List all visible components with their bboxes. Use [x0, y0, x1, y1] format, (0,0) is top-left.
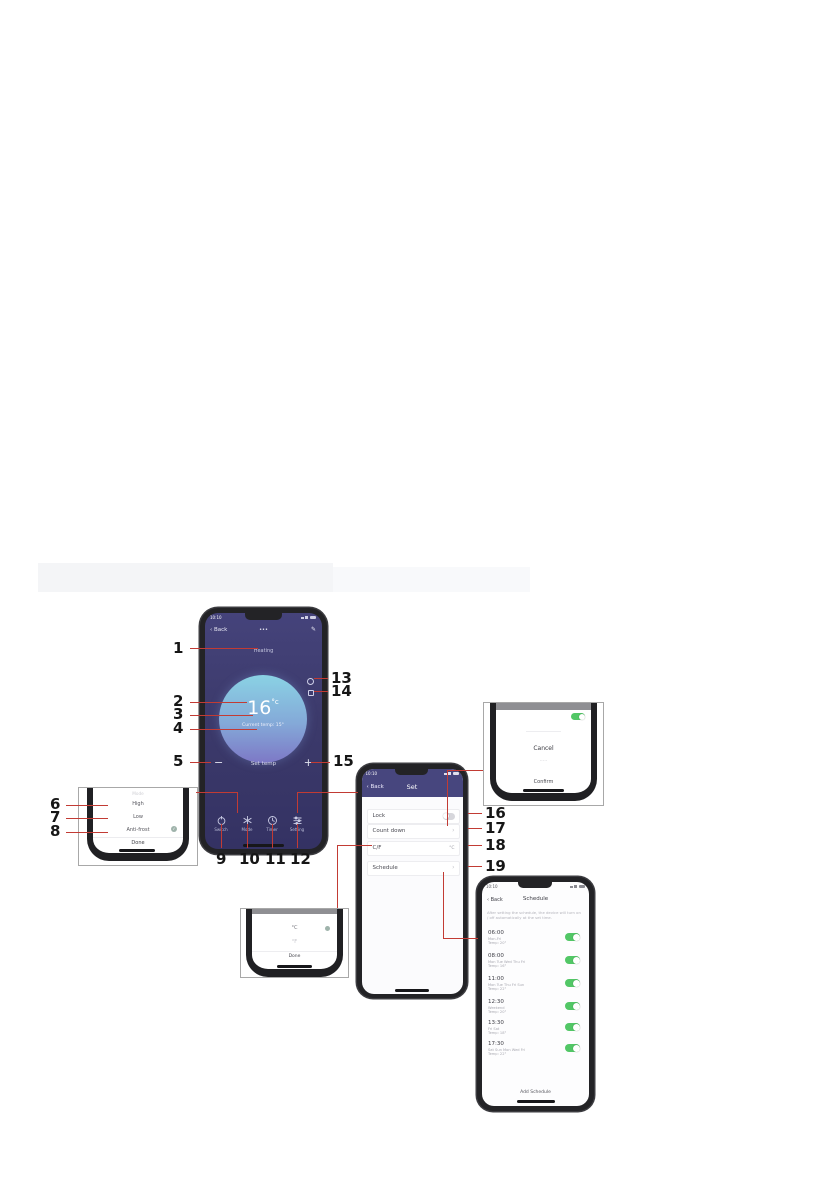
connector-countdown-v	[447, 770, 448, 826]
mode-done-button[interactable]: Done	[93, 840, 183, 846]
schedule-entry[interactable]: 11:00 Mon Tue Thu Fri Sun Temp: 22°	[488, 976, 583, 991]
schedule-note: After setting the schedule, the device w…	[487, 910, 582, 921]
countdown-confirm-button[interactable]: Confirm	[496, 779, 591, 785]
status-time: 10:10	[486, 884, 498, 889]
edit-icon[interactable]: ✎	[311, 626, 316, 633]
countdown-sheet-fragment-box: Cancel ····· Confirm	[483, 702, 604, 806]
entry-toggle[interactable]	[565, 1023, 580, 1031]
selected-check-icon: ✓	[171, 826, 177, 832]
scan-artifact-band	[38, 563, 333, 592]
connector-schedule-h	[443, 938, 478, 939]
scan-artifact-band	[333, 567, 530, 592]
countdown-sheet-phone: Cancel ····· Confirm	[490, 703, 597, 801]
current-temperature-label: Current temp: 15°	[219, 723, 307, 728]
wifi-icon	[305, 616, 308, 619]
cf-sheet-fragment-box: °C °F Done	[240, 908, 349, 978]
row-countdown[interactable]: Count down ›	[367, 824, 460, 839]
entry-toggle[interactable]	[565, 979, 580, 987]
schedule-screen: 10:10 ‹ Back Schedule After setting the …	[482, 882, 589, 1106]
entry-temp: Temp: 18°	[488, 1031, 583, 1035]
countdown-enable-toggle[interactable]	[571, 713, 585, 720]
connector-modesheet-v	[237, 792, 238, 813]
home-indicator	[243, 844, 284, 847]
callout-line-16	[468, 813, 482, 814]
divider	[252, 951, 337, 952]
phone-notch	[395, 769, 428, 775]
callout-line-4	[190, 729, 257, 730]
row-schedule[interactable]: Schedule ›	[367, 861, 460, 876]
home-indicator	[277, 965, 312, 968]
callout-number-4: 4	[173, 721, 183, 736]
callout-line-19	[468, 866, 482, 867]
schedule-entry[interactable]: 12:30 Weekend Temp: 20°	[488, 999, 583, 1014]
row-lock[interactable]: Lock	[367, 809, 460, 824]
cf-done-button[interactable]: Done	[252, 954, 337, 959]
connector-cf-h	[337, 845, 372, 846]
row-countdown-label: Count down	[373, 828, 406, 834]
dimmed-background-strip	[496, 703, 591, 710]
entry-toggle[interactable]	[565, 1044, 580, 1052]
row-lock-label: Lock	[373, 813, 386, 819]
callout-line-14	[314, 691, 328, 692]
callout-line-9	[221, 824, 222, 848]
mode-sheet-fragment-box: Mode High Low Anti-frost ✓ Done	[78, 787, 198, 866]
callout-number-1: 1	[173, 641, 183, 656]
connector-schedule-v	[443, 872, 444, 938]
schedule-entry[interactable]: 13:30 Fri Sat Temp: 18°	[488, 1020, 583, 1035]
callout-number-11: 11	[265, 852, 286, 867]
callout-number-18: 18	[485, 838, 506, 853]
phone-notch	[518, 882, 552, 888]
entry-temp: Temp: 16°	[488, 964, 583, 968]
picker-selected-value[interactable]: Cancel	[496, 745, 591, 752]
phone-schedule: 10:10 ‹ Back Schedule After setting the …	[477, 877, 594, 1111]
callout-number-5: 5	[173, 754, 183, 769]
connector-countdown-h	[447, 770, 483, 771]
callout-line-8	[66, 832, 108, 833]
countdown-indicator-icon	[307, 678, 314, 685]
connector-setphone-h	[297, 792, 358, 793]
temperature-dial[interactable]: 16°c Current temp: 15°	[219, 675, 307, 763]
battery-icon	[453, 772, 459, 775]
mode-sheet-title: Mode	[93, 791, 183, 796]
signal-icon	[301, 617, 304, 619]
phone-set: 10:10 ‹ Back Set Lock Count down › C/F °…	[357, 764, 467, 998]
callout-number-9: 9	[216, 852, 226, 867]
status-time: 10:10	[366, 771, 378, 776]
mode-option-high[interactable]: High	[93, 801, 183, 807]
callout-line-13	[314, 678, 328, 679]
status-icons	[444, 772, 459, 775]
callout-number-8: 8	[50, 824, 60, 839]
callout-line-1	[190, 648, 258, 649]
phone-notch	[245, 613, 282, 620]
callout-number-19: 19	[485, 859, 506, 874]
cf-option-fahrenheit[interactable]: °F	[252, 939, 337, 945]
schedule-title: Schedule	[482, 896, 589, 902]
divider	[93, 837, 183, 838]
entry-toggle[interactable]	[565, 956, 580, 964]
connector-modesheet-h	[196, 792, 237, 793]
callout-line-11	[272, 824, 273, 848]
lock-toggle[interactable]	[443, 813, 455, 820]
entry-toggle[interactable]	[565, 933, 580, 941]
chevron-right-icon: ›	[452, 864, 454, 871]
schedule-entry[interactable]: 17:30 Sat Sun Mon Wed Fri Temp: 22°	[488, 1041, 583, 1056]
status-icons	[570, 885, 585, 888]
schedule-entry[interactable]: 06:00 Mon-Fri Temp: 20°	[488, 930, 583, 945]
entry-toggle[interactable]	[565, 1002, 580, 1010]
status-icons	[301, 616, 317, 619]
entry-temp: Temp: 22°	[488, 987, 583, 991]
home-indicator	[119, 849, 155, 852]
callout-line-18	[468, 845, 482, 846]
connector-setphone-v	[297, 792, 298, 813]
mode-option-low[interactable]: Low	[93, 814, 183, 820]
callout-line-2	[190, 702, 247, 703]
callout-line-15	[311, 762, 330, 763]
callout-line-17	[468, 828, 482, 829]
callout-number-12: 12	[290, 852, 311, 867]
cf-sheet-phone: °C °F Done	[246, 909, 343, 977]
temp-unit: °c	[271, 698, 278, 706]
signal-icon	[570, 886, 573, 888]
entry-temp: Temp: 20°	[488, 941, 583, 945]
callout-number-14: 14	[331, 684, 352, 699]
battery-icon	[579, 885, 585, 888]
callout-line-7	[66, 818, 108, 819]
connector-cf-v	[337, 845, 338, 908]
selected-dot-icon	[325, 926, 330, 931]
callout-number-17: 17	[485, 821, 506, 836]
callout-line-10	[247, 824, 248, 848]
row-cf-label: C/F	[373, 845, 382, 851]
manual-page: 10:10 ‹ Back ••• ✎ Heating 16°c Current …	[0, 0, 839, 1191]
row-schedule-label: Schedule	[373, 865, 398, 871]
home-indicator	[395, 989, 429, 992]
schedule-entry[interactable]: 08:00 Mon Tue Wed Thu Fri Temp: 16°	[488, 953, 583, 968]
device-title: •••	[205, 627, 322, 633]
picker-next-value: ·····	[496, 758, 591, 764]
status-time: 10:10	[210, 615, 222, 620]
callout-number-10: 10	[239, 852, 260, 867]
home-indicator	[523, 789, 564, 792]
dimmed-background-strip	[252, 909, 337, 914]
callout-line-6	[66, 805, 108, 806]
entry-temp: Temp: 20°	[488, 1010, 583, 1014]
chevron-right-icon: ›	[452, 827, 454, 834]
phone-main: 10:10 ‹ Back ••• ✎ Heating 16°c Current …	[200, 608, 327, 854]
callout-line-12	[297, 824, 298, 848]
home-indicator	[517, 1100, 555, 1103]
callout-number-15: 15	[333, 754, 354, 769]
callout-line-3	[190, 715, 253, 716]
picker-divider	[526, 731, 561, 732]
cf-unit-value: °C	[449, 846, 454, 851]
mode-sheet-phone: Mode High Low Anti-frost ✓ Done	[87, 788, 189, 861]
battery-icon	[310, 616, 316, 619]
wifi-icon	[574, 885, 577, 888]
row-cf[interactable]: C/F °C	[367, 841, 460, 856]
add-schedule-button[interactable]: Add Schedule	[482, 1090, 589, 1095]
entry-temp: Temp: 22°	[488, 1052, 583, 1056]
callout-line-5	[190, 762, 211, 763]
